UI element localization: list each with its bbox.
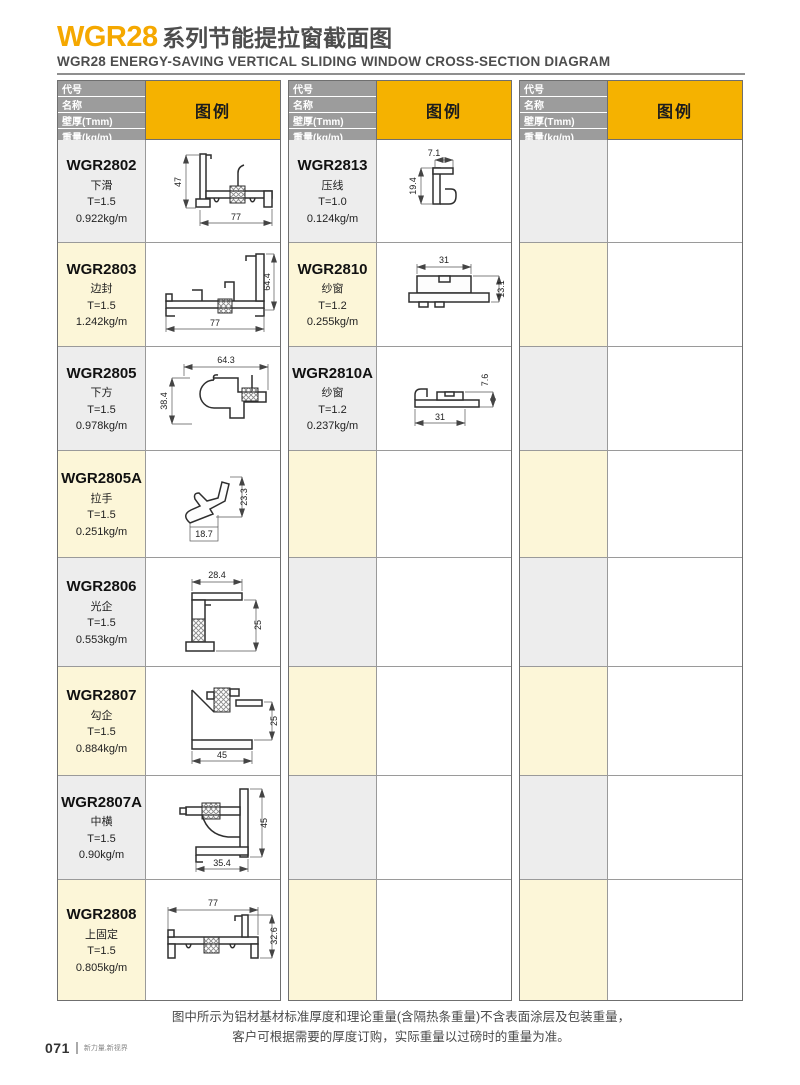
header-labels: 代号 名称 壁厚(Tmm) 重量(kg/m) bbox=[289, 81, 377, 139]
product-name: 光企 bbox=[91, 599, 113, 616]
table-row: WGR2802 下滑 T=1.5 0.922kg/m 47 77 bbox=[58, 140, 280, 243]
dim-label: 77 bbox=[231, 212, 241, 222]
product-weight: 0.251kg/m bbox=[76, 524, 127, 541]
product-code: WGR2803 bbox=[66, 259, 136, 282]
product-thickness: T=1.5 bbox=[87, 194, 115, 211]
product-info-wgr2803: WGR2803 边封 T=1.5 1.242kg/m bbox=[58, 243, 146, 346]
header-labels: 代号 名称 壁厚(Tmm) 重量(kg/m) bbox=[58, 81, 146, 139]
cross-section-drawing: 45 35.4 bbox=[146, 779, 280, 877]
dim-label: 45 bbox=[217, 750, 227, 760]
table-row bbox=[520, 140, 742, 243]
table-row bbox=[289, 880, 511, 1000]
table-row: WGR2810 纱窗 T=1.2 0.255kg/m 31 13.1 bbox=[289, 243, 511, 347]
dim-label: 38.4 bbox=[159, 392, 169, 410]
dim-label: 7.6 bbox=[480, 374, 490, 387]
product-thickness: T=1.5 bbox=[87, 298, 115, 315]
empty-diagram-cell bbox=[377, 451, 511, 557]
cross-section-drawing: 31 13.1 bbox=[377, 246, 511, 344]
empty-diagram-cell bbox=[377, 776, 511, 879]
cross-section-drawing: 77 32.6 bbox=[146, 891, 280, 989]
product-name: 边封 bbox=[91, 281, 113, 298]
product-name: 中横 bbox=[91, 814, 113, 831]
product-name: 拉手 bbox=[91, 491, 113, 508]
empty-label-cell bbox=[520, 451, 608, 557]
header-name: 名称 bbox=[520, 97, 607, 112]
product-code: WGR2808 bbox=[66, 904, 136, 927]
header-name: 名称 bbox=[58, 97, 145, 112]
cross-section-cell-wgr2807: 25 45 bbox=[146, 667, 280, 775]
dim-label: 77 bbox=[210, 318, 220, 328]
cross-section-cell-wgr2805a: 23.3 18.7 bbox=[146, 451, 280, 557]
cross-section-cell-wgr2805: 64.3 38.4 bbox=[146, 347, 280, 450]
table-row bbox=[289, 776, 511, 880]
table-row: WGR2807A 中横 T=1.5 0.90kg/m bbox=[58, 776, 280, 880]
product-info-wgr2808: WGR2808 上固定 T=1.5 0.805kg/m bbox=[58, 880, 146, 1000]
product-weight: 0.255kg/m bbox=[307, 314, 358, 331]
table-row: WGR2813 压线 T=1.0 0.124kg/m 7.1 19.4 bbox=[289, 140, 511, 243]
cross-section-drawing: 28.4 25 bbox=[146, 563, 280, 661]
product-name: 纱窗 bbox=[322, 281, 344, 298]
footer-divider bbox=[76, 1042, 78, 1054]
empty-diagram-cell bbox=[608, 451, 742, 557]
empty-diagram-cell bbox=[608, 558, 742, 666]
product-info-wgr2810: WGR2810 纱窗 T=1.2 0.255kg/m bbox=[289, 243, 377, 346]
product-weight: 0.884kg/m bbox=[76, 741, 127, 758]
product-name: 上固定 bbox=[85, 927, 118, 944]
table-row bbox=[520, 347, 742, 451]
product-weight: 0.124kg/m bbox=[307, 211, 358, 228]
product-thickness: T=1.5 bbox=[87, 507, 115, 524]
table-row: WGR2805 下方 T=1.5 0.978kg/m 64.3 38.4 bbox=[58, 347, 280, 451]
series-title-cn: 系列节能提拉窗截面图 bbox=[162, 25, 392, 51]
dim-label: 32.6 bbox=[269, 928, 279, 946]
title-divider bbox=[57, 73, 745, 75]
dim-label: 77 bbox=[208, 898, 218, 908]
footer-note-line2: 客户可根据需要的厚度订购，实际重量以过磅时的重量为准。 bbox=[57, 1028, 745, 1047]
dim-label: 25 bbox=[269, 716, 279, 726]
empty-label-cell bbox=[520, 880, 608, 1000]
cross-section-cell-wgr2810a: 7.6 31 bbox=[377, 347, 511, 450]
product-name: 纱窗 bbox=[322, 385, 344, 402]
cross-section-drawing: 25 45 bbox=[146, 672, 280, 770]
cross-section-drawing: 47 77 bbox=[146, 142, 280, 240]
cross-section-cell-wgr2810: 31 13.1 bbox=[377, 243, 511, 346]
empty-diagram-cell bbox=[608, 667, 742, 775]
product-info-wgr2802: WGR2802 下滑 T=1.5 0.922kg/m bbox=[58, 140, 146, 242]
product-code: WGR2805 bbox=[66, 363, 136, 386]
page-footer: 071 新力量,新视界 bbox=[45, 1040, 128, 1056]
dim-label: 64.3 bbox=[217, 355, 235, 365]
empty-label-cell bbox=[289, 776, 377, 879]
header-thickness: 壁厚(Tmm) bbox=[520, 113, 607, 128]
empty-label-cell bbox=[520, 243, 608, 346]
table-row bbox=[289, 451, 511, 558]
empty-diagram-cell bbox=[608, 880, 742, 1000]
product-thickness: T=1.5 bbox=[87, 943, 115, 960]
cross-section-cell-wgr2813: 7.1 19.4 bbox=[377, 140, 511, 242]
dim-label: 18.7 bbox=[195, 529, 213, 539]
table-row bbox=[520, 667, 742, 776]
dim-label: 45 bbox=[259, 818, 269, 828]
empty-diagram-cell bbox=[608, 776, 742, 879]
empty-label-cell bbox=[289, 558, 377, 666]
cross-section-drawing: 7.6 31 bbox=[377, 350, 511, 448]
header-code: 代号 bbox=[289, 81, 376, 96]
empty-label-cell bbox=[289, 880, 377, 1000]
dim-label: 13.1 bbox=[496, 280, 506, 298]
product-info-wgr2805: WGR2805 下方 T=1.5 0.978kg/m bbox=[58, 347, 146, 450]
empty-diagram-cell bbox=[608, 243, 742, 346]
dim-label: 28.4 bbox=[208, 570, 226, 580]
dim-label: 31 bbox=[439, 255, 449, 265]
header-thickness: 壁厚(Tmm) bbox=[289, 113, 376, 128]
product-name: 压线 bbox=[322, 178, 344, 195]
cross-section-cell-wgr2808: 77 32.6 bbox=[146, 880, 280, 1000]
table-row bbox=[520, 880, 742, 1000]
footer-note: 图中所示为铝材基材标准厚度和理论重量(含隔热条重量)不含表面涂层及包装重量， 客… bbox=[57, 1008, 745, 1047]
product-name: 下方 bbox=[91, 385, 113, 402]
header-name: 名称 bbox=[289, 97, 376, 112]
spec-column-2: 代号 名称 壁厚(Tmm) 重量(kg/m) 图例 WGR2813 压线 T=1… bbox=[288, 80, 512, 1001]
table-row: WGR2810A 纱窗 T=1.2 0.237kg/m 7.6 bbox=[289, 347, 511, 451]
series-title-en: WGR28 ENERGY-SAVING VERTICAL SLIDING WIN… bbox=[57, 54, 745, 69]
header-legend: 图例 bbox=[377, 81, 511, 139]
table-header-col3: 代号 名称 壁厚(Tmm) 重量(kg/m) 图例 bbox=[520, 81, 742, 140]
empty-diagram-cell bbox=[377, 558, 511, 666]
spec-table: 代号 名称 壁厚(Tmm) 重量(kg/m) 图例 WGR2802 下滑 T=1… bbox=[57, 80, 745, 1001]
product-weight: 0.978kg/m bbox=[76, 418, 127, 435]
cross-section-drawing: 7.1 19.4 bbox=[377, 142, 511, 240]
header-thickness: 壁厚(Tmm) bbox=[58, 113, 145, 128]
cross-section-cell-wgr2807a: 45 35.4 bbox=[146, 776, 280, 879]
product-weight: 0.237kg/m bbox=[307, 418, 358, 435]
product-code: WGR2806 bbox=[66, 576, 136, 599]
product-thickness: T=1.0 bbox=[318, 194, 346, 211]
empty-label-cell bbox=[520, 140, 608, 242]
empty-diagram-cell bbox=[608, 347, 742, 450]
empty-label-cell bbox=[520, 558, 608, 666]
cross-section-cell-wgr2803: 64.4 77 bbox=[146, 243, 280, 346]
table-row bbox=[520, 451, 742, 558]
table-row bbox=[520, 776, 742, 880]
product-weight: 0.805kg/m bbox=[76, 960, 127, 977]
product-info-wgr2810a: WGR2810A 纱窗 T=1.2 0.237kg/m bbox=[289, 347, 377, 450]
empty-label-cell bbox=[289, 451, 377, 557]
dim-label: 7.1 bbox=[428, 148, 441, 158]
dim-label: 31 bbox=[435, 412, 445, 422]
product-weight: 1.242kg/m bbox=[76, 314, 127, 331]
product-code: WGR2807 bbox=[66, 685, 136, 708]
product-info-wgr2813: WGR2813 压线 T=1.0 0.124kg/m bbox=[289, 140, 377, 242]
dim-label: 23.3 bbox=[239, 489, 249, 507]
empty-label-cell bbox=[520, 347, 608, 450]
product-weight: 0.922kg/m bbox=[76, 211, 127, 228]
product-code: WGR2813 bbox=[297, 155, 367, 178]
series-code: WGR28 bbox=[57, 21, 158, 53]
header-labels: 代号 名称 壁厚(Tmm) 重量(kg/m) bbox=[520, 81, 608, 139]
product-code: WGR2810 bbox=[297, 259, 367, 282]
cross-section-cell-wgr2806: 28.4 25 bbox=[146, 558, 280, 666]
dim-label: 47 bbox=[173, 177, 183, 187]
product-code: WGR2805A bbox=[61, 468, 142, 491]
cross-section-drawing: 64.4 77 bbox=[146, 246, 280, 344]
product-code: WGR2807A bbox=[61, 792, 142, 815]
product-weight: 0.553kg/m bbox=[76, 632, 127, 649]
product-code: WGR2802 bbox=[66, 155, 136, 178]
cross-section-cell-wgr2802: 47 77 bbox=[146, 140, 280, 242]
table-row bbox=[289, 558, 511, 667]
spec-column-1: 代号 名称 壁厚(Tmm) 重量(kg/m) 图例 WGR2802 下滑 T=1… bbox=[57, 80, 281, 1001]
header-code: 代号 bbox=[58, 81, 145, 96]
table-row: WGR2808 上固定 T=1.5 0.805kg/m 77 32.6 bbox=[58, 880, 280, 1000]
table-row bbox=[289, 667, 511, 776]
table-row: WGR2807 勾企 T=1.5 0.884kg/m bbox=[58, 667, 280, 776]
product-thickness: T=1.5 bbox=[87, 724, 115, 741]
empty-diagram-cell bbox=[377, 667, 511, 775]
product-info-wgr2805a: WGR2805A 拉手 T=1.5 0.251kg/m bbox=[58, 451, 146, 557]
product-thickness: T=1.2 bbox=[318, 402, 346, 419]
empty-label-cell bbox=[520, 667, 608, 775]
empty-label-cell bbox=[520, 776, 608, 879]
table-row bbox=[520, 243, 742, 347]
page-number: 071 bbox=[45, 1040, 70, 1056]
product-info-wgr2806: WGR2806 光企 T=1.5 0.553kg/m bbox=[58, 558, 146, 666]
product-thickness: T=1.5 bbox=[87, 831, 115, 848]
product-weight: 0.90kg/m bbox=[79, 847, 124, 864]
product-thickness: T=1.5 bbox=[87, 402, 115, 419]
table-header-col2: 代号 名称 壁厚(Tmm) 重量(kg/m) 图例 bbox=[289, 81, 511, 140]
product-name: 勾企 bbox=[91, 708, 113, 725]
table-row: WGR2803 边封 T=1.5 1.242kg/m 64.4 77 bbox=[58, 243, 280, 347]
header-legend: 图例 bbox=[608, 81, 742, 139]
header-legend: 图例 bbox=[146, 81, 280, 139]
empty-diagram-cell bbox=[377, 880, 511, 1000]
product-thickness: T=1.2 bbox=[318, 298, 346, 315]
product-info-wgr2807: WGR2807 勾企 T=1.5 0.884kg/m bbox=[58, 667, 146, 775]
table-row: WGR2805A 拉手 T=1.5 0.251kg/m 23.3 bbox=[58, 451, 280, 558]
cross-section-drawing: 64.3 38.4 bbox=[146, 350, 280, 448]
cross-section-drawing: 23.3 18.7 bbox=[146, 455, 280, 553]
catalog-page: WGR28 系列节能提拉窗截面图 WGR28 ENERGY-SAVING VER… bbox=[0, 0, 800, 1085]
empty-diagram-cell bbox=[608, 140, 742, 242]
dim-label: 35.4 bbox=[213, 858, 231, 868]
dim-label: 25 bbox=[253, 620, 263, 630]
product-info-wgr2807a: WGR2807A 中横 T=1.5 0.90kg/m bbox=[58, 776, 146, 879]
footer-tagline: 新力量,新视界 bbox=[84, 1043, 128, 1053]
product-name: 下滑 bbox=[91, 178, 113, 195]
empty-label-cell bbox=[289, 667, 377, 775]
spec-column-3: 代号 名称 壁厚(Tmm) 重量(kg/m) 图例 bbox=[519, 80, 743, 1001]
table-row bbox=[520, 558, 742, 667]
table-row: WGR2806 光企 T=1.5 0.553kg/m 28.4 25 bbox=[58, 558, 280, 667]
header-code: 代号 bbox=[520, 81, 607, 96]
dim-label: 19.4 bbox=[408, 178, 418, 196]
product-code: WGR2810A bbox=[292, 363, 373, 386]
footer-note-line1: 图中所示为铝材基材标准厚度和理论重量(含隔热条重量)不含表面涂层及包装重量， bbox=[57, 1008, 745, 1027]
table-header-col1: 代号 名称 壁厚(Tmm) 重量(kg/m) 图例 bbox=[58, 81, 280, 140]
page-title: WGR28 系列节能提拉窗截面图 bbox=[57, 22, 745, 52]
product-thickness: T=1.5 bbox=[87, 615, 115, 632]
